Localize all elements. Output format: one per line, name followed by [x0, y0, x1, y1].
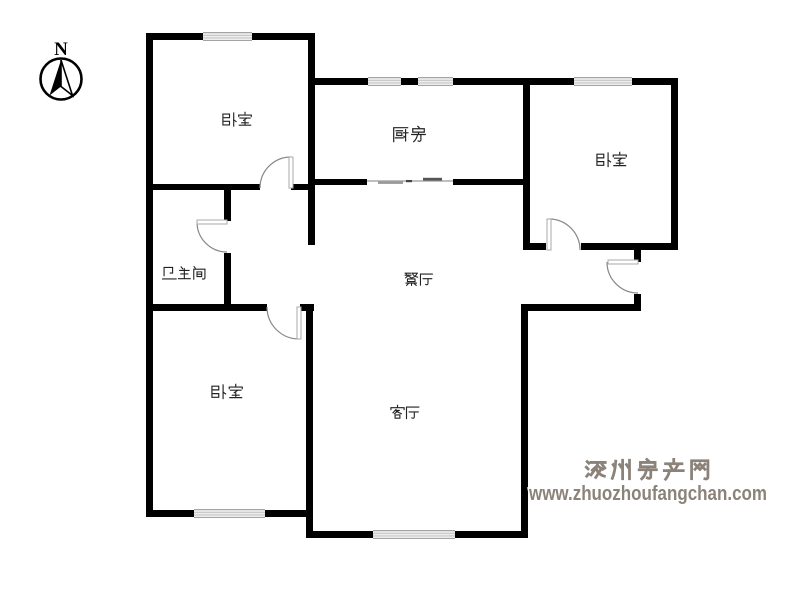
svg-text:N: N — [54, 39, 68, 60]
svg-text:www.zhuozhoufangchan.com: www.zhuozhoufangchan.com — [528, 483, 767, 505]
